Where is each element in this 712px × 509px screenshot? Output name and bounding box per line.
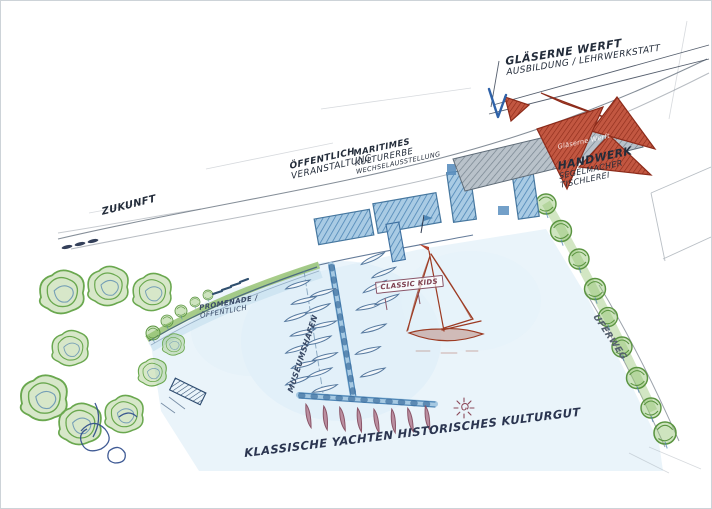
- small-boats-upper-left: [61, 238, 99, 250]
- harbor-masterplan-sketch: ZUKUNFT GLÄSERNE WERFT AUSBILDUNG / LEHR…: [0, 0, 712, 509]
- site-plan-drawing: [1, 1, 711, 508]
